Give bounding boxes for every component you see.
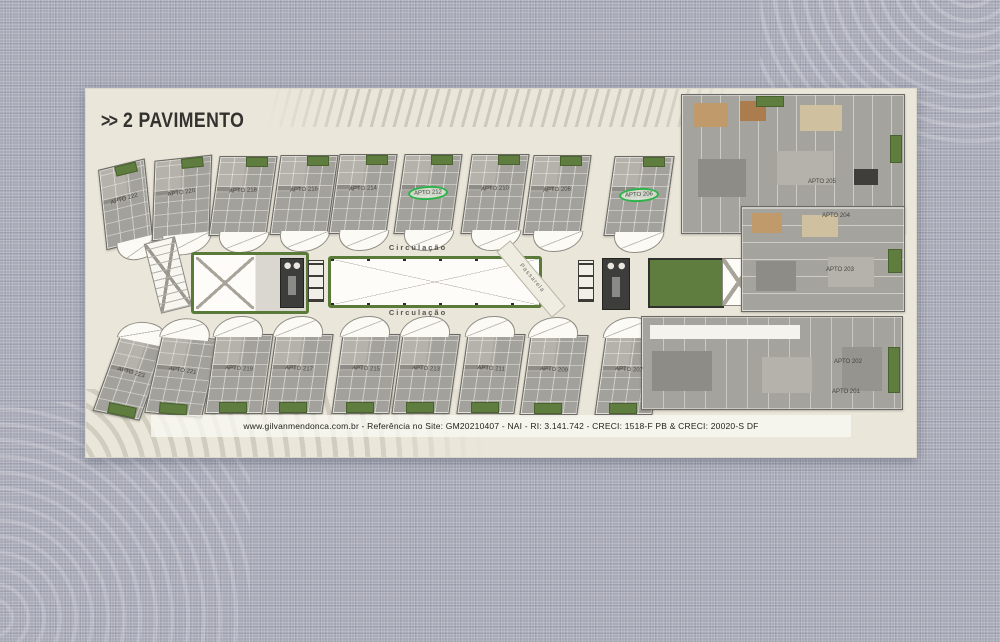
footer-reference-bar: www.gilvanmendonca.com.br - Referência n… [151,415,851,437]
apartment-unit: APTO 210 [466,154,524,254]
garden-patch [159,402,188,415]
apartment-unit: APTO 219 [210,314,268,414]
garden-patch [534,403,562,414]
balcony-arc [217,232,270,253]
right-wing-block-204-203: APTO 204 APTO 203 [741,206,905,312]
furnished-rooms [742,207,904,311]
garden-terrace [648,258,724,308]
elevator-core [602,258,630,310]
garden-patch [219,402,247,413]
garden-patch [498,155,520,165]
apartment-rooms [208,156,277,236]
balcony-arc [340,316,393,337]
page-background: { "header": { "arrows": ">>", "title": "… [0,0,1000,562]
garden-patch [279,402,307,413]
elevator-icon [578,260,594,302]
apartment-label: APTO 202 [834,359,862,365]
garden-patch [366,155,388,165]
apartment-rooms [522,155,591,235]
balcony-arc [612,232,665,253]
balcony-arc [400,316,453,337]
balcony-arc [213,316,266,337]
garden-patch [609,403,637,414]
circulation-label-top: Circulação [318,243,518,252]
apartment-unit: APTO 218 [214,156,272,256]
apartment-label: APTO 203 [826,267,854,273]
garden-patch [471,402,499,413]
garden-patch [890,135,902,163]
apartment-unit: APTO 217 [270,314,328,414]
void-cross-lines [196,257,254,309]
garden-patch [888,347,900,393]
footer-reference-text: www.gilvanmendonca.com.br - Referência n… [243,421,758,431]
balcony-arc [273,316,326,337]
garden-patch [560,156,582,166]
floorplan-card: >>2 PAVIMENTO APTO 222 APTO 220 APTO 218… [85,88,917,458]
elevator-icon [308,260,324,302]
balcony-arc [531,231,584,252]
garden-patch [888,249,902,273]
apartment-unit: APTO 208 [528,155,586,255]
garden-patch [643,157,665,167]
garden-patch [307,156,329,166]
apartment-rooms [460,154,529,234]
garden-patch [756,96,784,107]
apartment-label: APTO 201 [832,389,860,395]
apartment-rooms [269,155,338,235]
circulation-label-bottom: Circulação [318,308,518,317]
left-void-block [191,252,309,314]
right-wing-block-202-201: APTO 202 APTO 201 [641,316,903,410]
garden-patch [246,157,268,167]
floor-plan: APTO 222 APTO 220 APTO 218 APTO 216 APTO… [96,94,916,434]
elevator-core [280,258,304,308]
balcony-arc [159,316,214,341]
apartment-label: APTO 205 [808,179,836,185]
apartment-unit: APTO 211 [462,314,520,414]
apartment-unit: APTO 215 [337,314,395,414]
apartment-unit: APTO 212 [399,154,457,254]
apartment-unit: APTO 206 [609,156,669,256]
garden-patch [346,402,374,413]
apartment-unit: APTO 213 [397,314,455,414]
balcony-arc [528,317,581,338]
rooms [642,317,902,409]
balcony-arc [465,316,518,337]
apartment-rooms [328,154,397,234]
apartment-label: APTO 204 [822,213,850,219]
apartment-unit: APTO 214 [334,154,392,254]
garden-patch [406,402,434,413]
apartment-unit: APTO 209 [525,315,583,415]
garden-patch [431,155,453,165]
apartment-unit: APTO 216 [275,155,333,255]
